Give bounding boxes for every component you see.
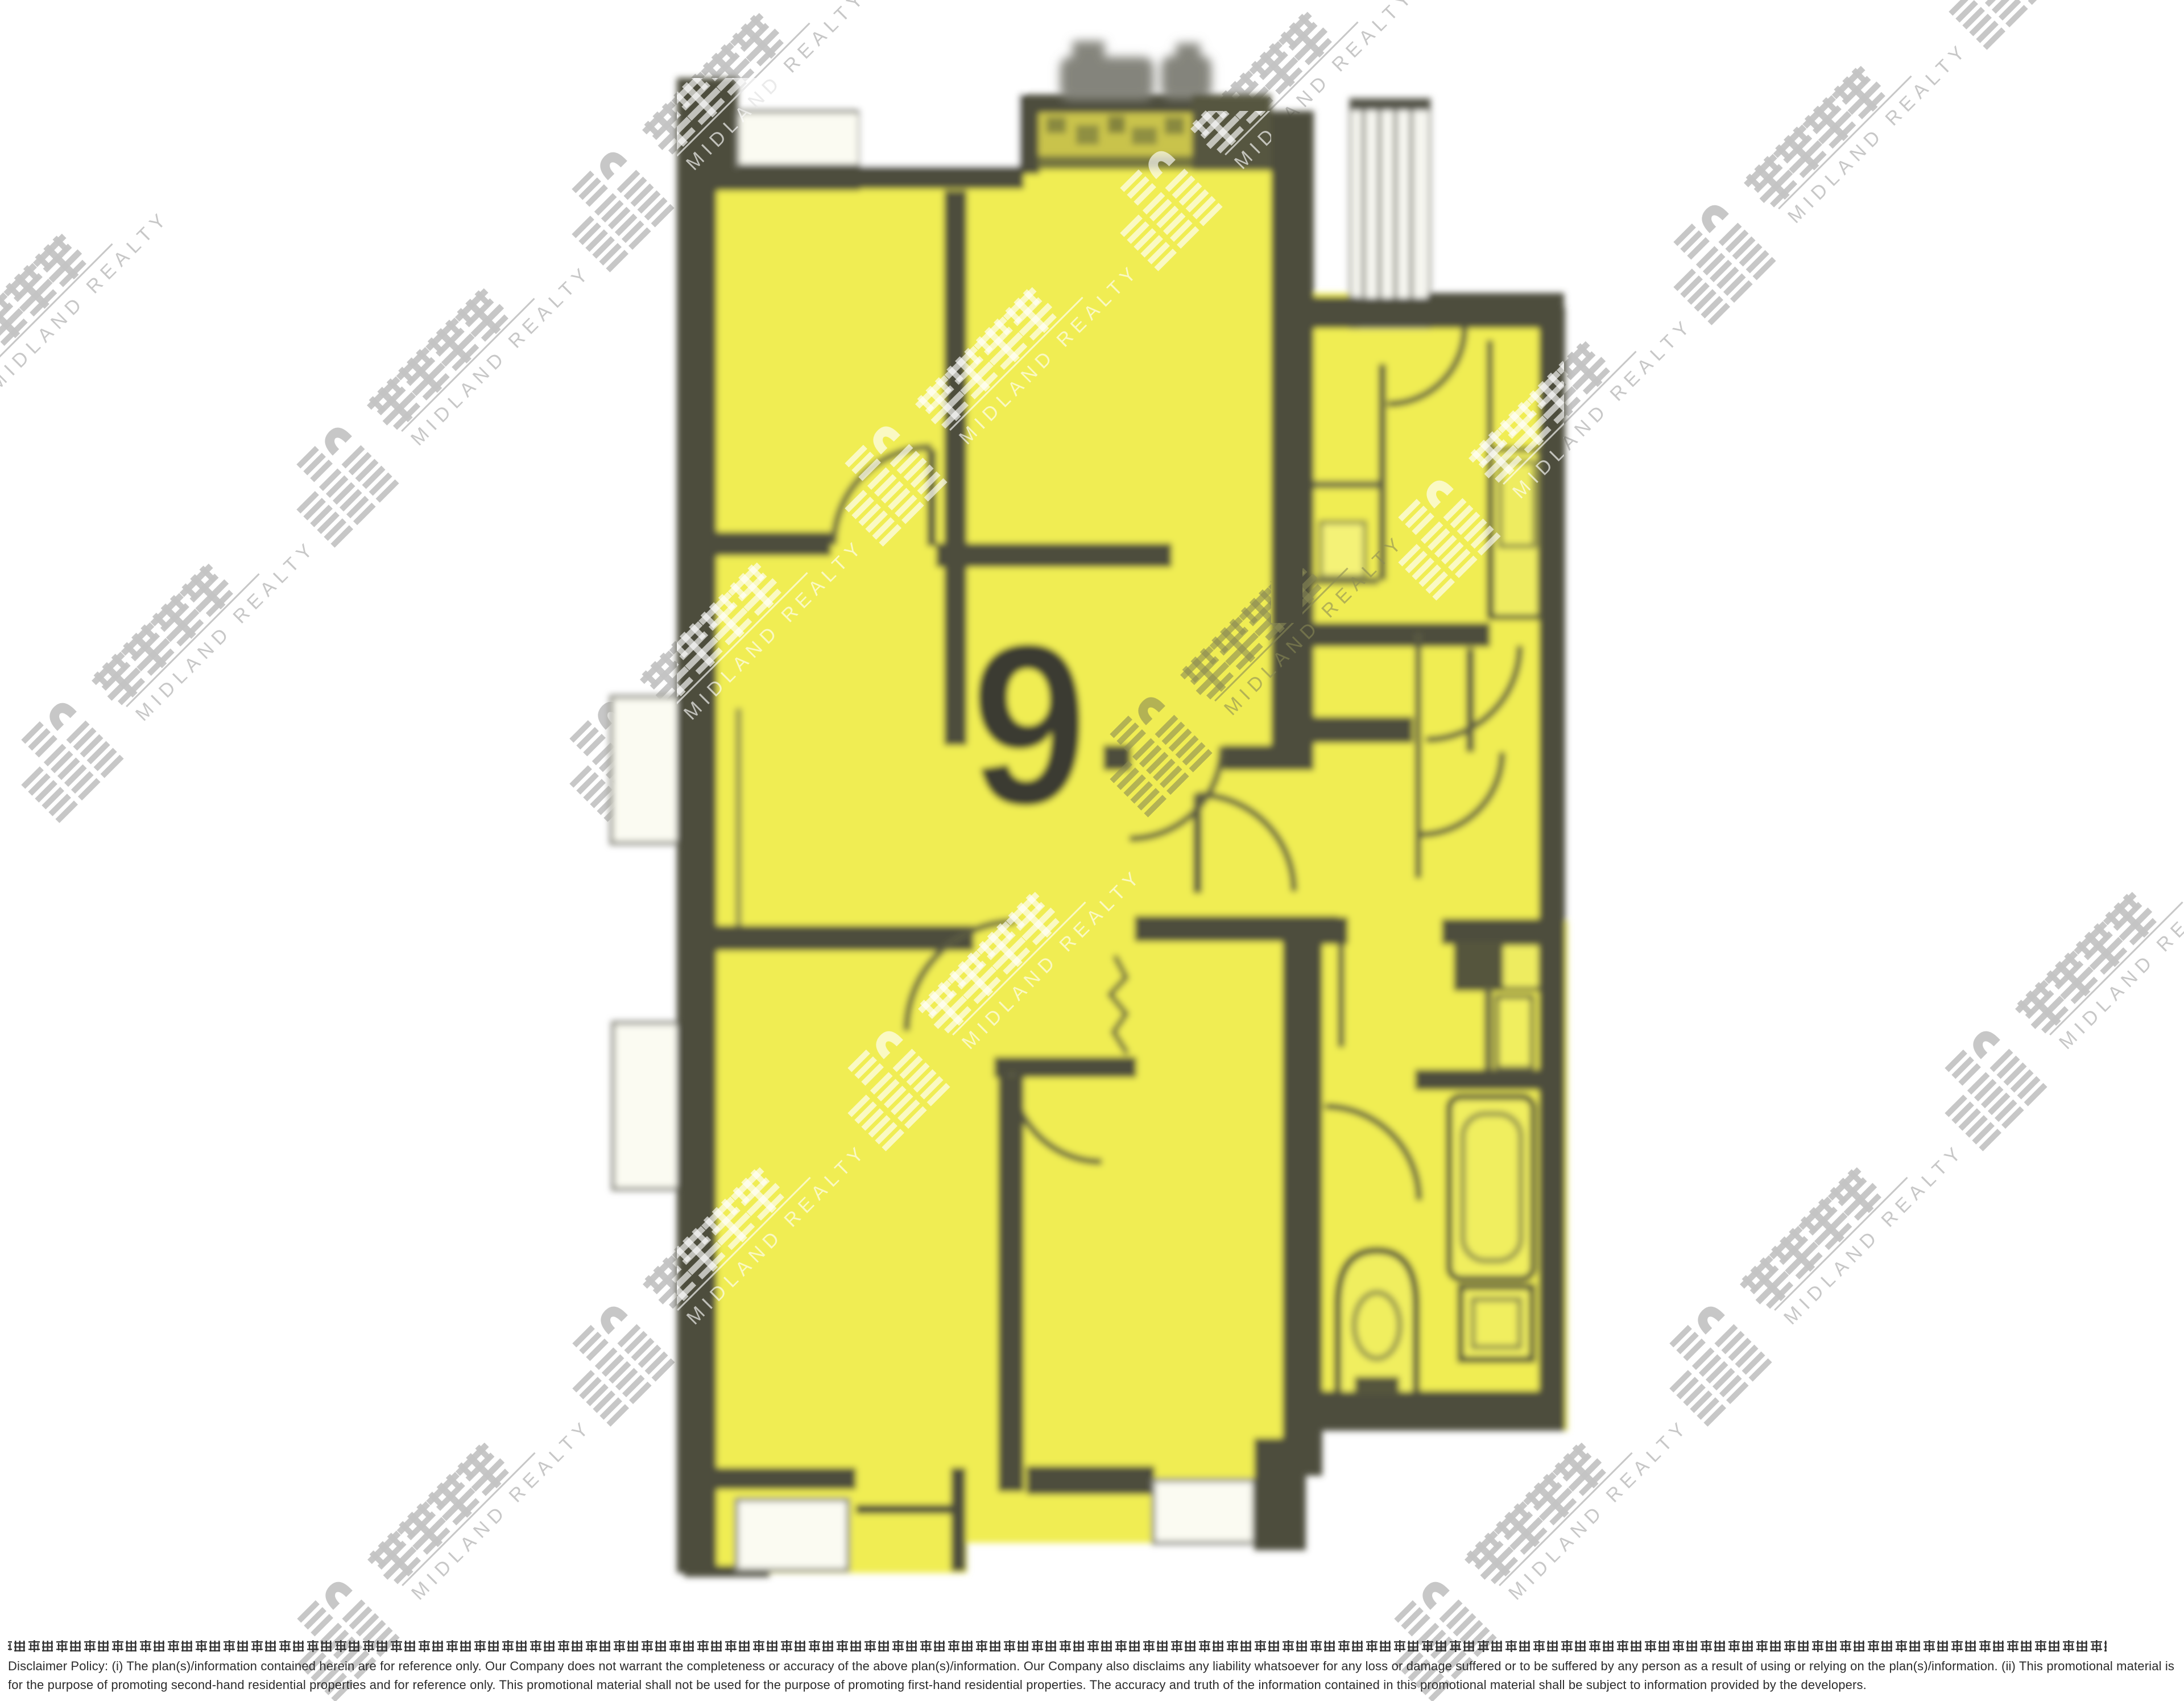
svg-text:9: 9 (971, 598, 1087, 852)
